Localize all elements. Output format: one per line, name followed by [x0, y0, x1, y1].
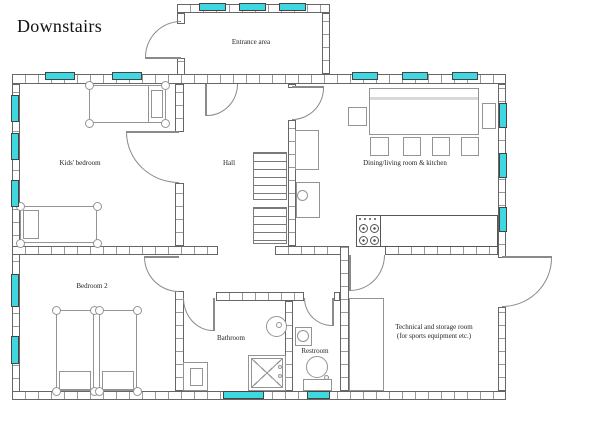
label-technical: Technical and storage room (for sports e… [354, 323, 514, 341]
stove-knob [374, 218, 376, 220]
label-technical-line2: (for sports equipment etc.) [397, 332, 471, 340]
floor-plan: Downstairs Entrance area Kids' bedroom H… [0, 0, 600, 440]
bedpost [52, 306, 61, 315]
stove-burner [370, 236, 379, 245]
kids-bed-1-divider [148, 86, 149, 122]
toilet-button [324, 375, 329, 380]
window-dining-east-3 [499, 207, 507, 232]
stove-knob [359, 218, 361, 220]
page-title: Downstairs [17, 16, 102, 37]
window-kids-top-1 [45, 72, 75, 80]
window-kids-top-2 [112, 72, 142, 80]
bedpost [85, 119, 94, 128]
wall-kids-hall-lower [175, 183, 184, 246]
window-kids-west-1 [11, 95, 19, 122]
dining-table-band [370, 97, 478, 100]
wall-kids-hall-upper [175, 84, 184, 132]
wall-divider-left [12, 246, 218, 255]
kids-bed-2-pillow [23, 210, 39, 239]
restroom-door-arc [304, 298, 332, 326]
bathroom-door-leaf [213, 298, 215, 331]
kids-bed-1-pillow [151, 90, 163, 118]
bedpost [161, 81, 170, 90]
shower-tap [278, 365, 282, 369]
stove-knob [369, 218, 371, 220]
sideboard [295, 130, 319, 170]
label-bedroom2: Bedroom 2 [32, 282, 152, 291]
kitchen-sink-basin [297, 190, 308, 201]
bedpost [93, 202, 102, 211]
stove-burner [359, 236, 368, 245]
washing-machine-door [190, 368, 203, 386]
window-entrance-1 [199, 3, 226, 11]
bathroom-door-arc [183, 298, 213, 331]
wall-entrance-right [322, 13, 330, 74]
entrance-exterior-door-arc [145, 21, 181, 57]
bedroom2-bed-right-foot [102, 371, 134, 390]
stairs-lower-flight [253, 207, 287, 244]
chair-bottom-1 [370, 137, 389, 156]
wall-technical-divider [340, 246, 349, 391]
kids-bedroom-door-arc [126, 132, 179, 183]
label-restroom: Restroom [285, 347, 345, 356]
entrance-exterior-door-leaf [145, 57, 181, 59]
label-kids-bedroom: Kids' bedroom [20, 159, 140, 168]
dining-table [369, 88, 479, 135]
window-entrance-3 [279, 3, 306, 11]
bedpost [133, 306, 142, 315]
wall-east-lower [498, 307, 506, 391]
wall-entrance-left-lower [177, 58, 185, 75]
bedpost [52, 387, 61, 396]
label-dining: Dining/living room & kitchen [325, 159, 485, 168]
bedpost [93, 239, 102, 248]
label-bathroom: Bathroom [191, 334, 271, 343]
east-entry-door-arc [502, 258, 552, 307]
restroom-door-leaf [332, 298, 334, 326]
hall-door-arc [207, 84, 238, 116]
wall-divider-right [385, 246, 498, 255]
bedpost [85, 81, 94, 90]
shower-tap [278, 374, 282, 378]
storage-unit [349, 298, 384, 391]
window-dining-top-3 [452, 72, 478, 80]
chair-bottom-2 [403, 137, 421, 156]
bedpost [95, 387, 104, 396]
bedpost [161, 119, 170, 128]
bedpost [95, 306, 104, 315]
bedroom2-bed-left-foot [59, 371, 91, 390]
window-bedroom2-west-2 [11, 336, 19, 364]
window-dining-east-1 [499, 103, 507, 128]
chair-bottom-3 [432, 137, 450, 156]
shower-inner [251, 358, 283, 388]
window-dining-top-2 [402, 72, 428, 80]
restroom-sink-bowl [297, 330, 309, 342]
window-kids-west-2 [11, 133, 19, 160]
window-restroom-bottom [307, 391, 330, 399]
window-dining-top-1 [352, 72, 378, 80]
stove-burner [370, 224, 379, 233]
window-dining-east-2 [499, 153, 507, 178]
window-bathroom-bottom [223, 391, 264, 399]
label-hall: Hall [199, 159, 259, 168]
dining-door-arc [292, 88, 324, 120]
bedpost [133, 387, 142, 396]
wall-bathroom-top [216, 292, 304, 301]
label-technical-line1: Technical and storage room [395, 323, 472, 331]
chair-right [482, 103, 496, 129]
stove-burner [359, 224, 368, 233]
toilet-tank [303, 379, 332, 391]
bedpost [16, 239, 25, 248]
chair-left [348, 107, 367, 126]
wall-bath-restroom-divider [285, 301, 293, 391]
window-entrance-2 [239, 3, 266, 11]
window-kids-west-3 [11, 180, 19, 207]
chair-bottom-4 [461, 137, 479, 156]
window-bedroom2-west-1 [11, 274, 19, 307]
stove-knob [364, 218, 366, 220]
wall-divider-mid [275, 246, 349, 255]
technical-door-arc [350, 255, 385, 291]
bathroom-sink-drain [276, 322, 282, 328]
label-entrance-area: Entrance area [191, 38, 311, 47]
